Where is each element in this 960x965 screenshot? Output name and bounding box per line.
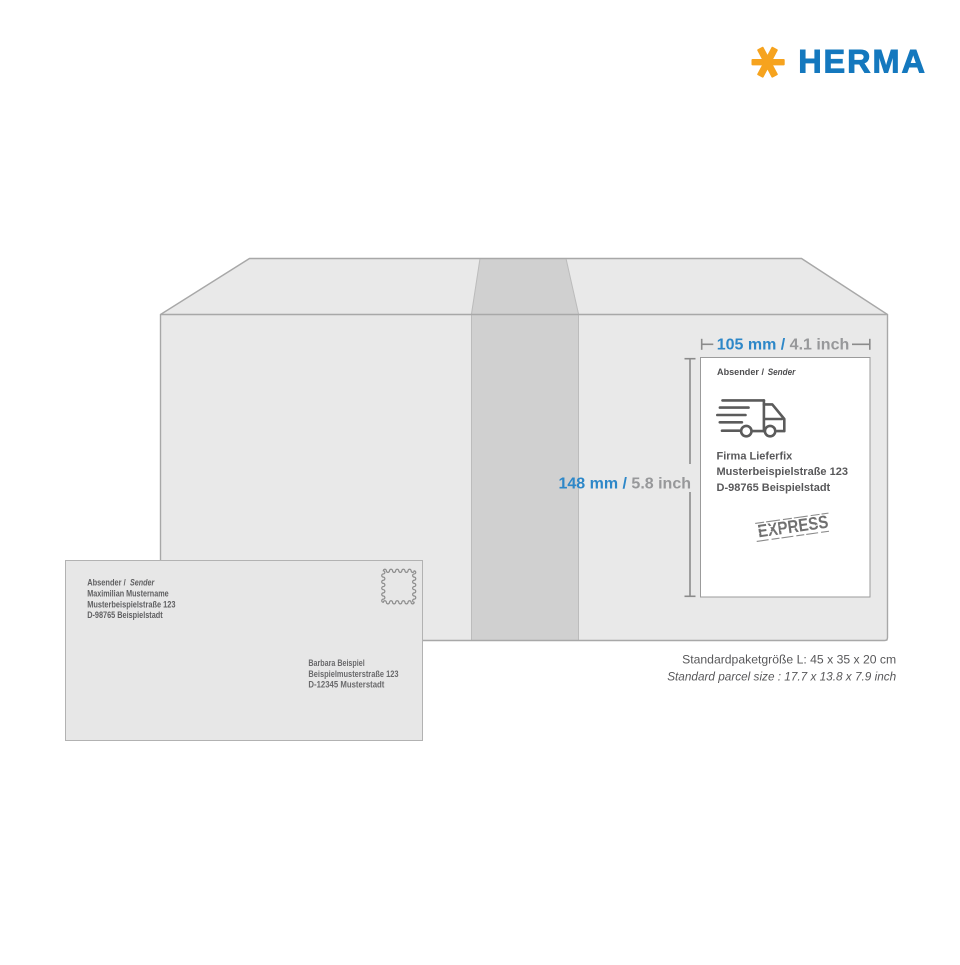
svg-text:Musterbeispielstraße 123: Musterbeispielstraße 123: [87, 599, 175, 609]
svg-text:Standardpaketgröße L: 45 x 35: Standardpaketgröße L: 45 x 35 x 20 cm: [682, 652, 896, 666]
svg-text:Maximilian Mustername: Maximilian Mustername: [87, 589, 169, 599]
svg-text:Absender /: Absender /: [717, 367, 764, 377]
svg-text:Barbara Beispiel: Barbara Beispiel: [308, 658, 364, 668]
svg-text:Beispielmusterstraße 123: Beispielmusterstraße 123: [308, 669, 398, 679]
svg-text:Firma Lieferfix: Firma Lieferfix: [717, 450, 794, 462]
svg-text:D-12345 Musterstadt: D-12345 Musterstadt: [308, 680, 384, 690]
svg-text:HERMA: HERMA: [798, 44, 927, 80]
svg-text:Sender: Sender: [768, 367, 797, 377]
svg-text:D-98765 Beispielstadt: D-98765 Beispielstadt: [717, 482, 831, 494]
svg-text:148 mm / 5.8 inch: 148 mm / 5.8 inch: [558, 476, 691, 493]
svg-text:Standard parcel size : 17.7 x: Standard parcel size : 17.7 x 13.8 x 7.9…: [667, 670, 896, 684]
svg-text:105 mm / 4.1 inch: 105 mm / 4.1 inch: [717, 336, 850, 353]
svg-text:D-98765 Beispielstadt: D-98765 Beispielstadt: [87, 610, 163, 620]
svg-text:Absender /: Absender /: [87, 578, 126, 588]
svg-text:Sender: Sender: [130, 578, 155, 588]
svg-text:Musterbeispielstraße 123: Musterbeispielstraße 123: [717, 466, 848, 478]
